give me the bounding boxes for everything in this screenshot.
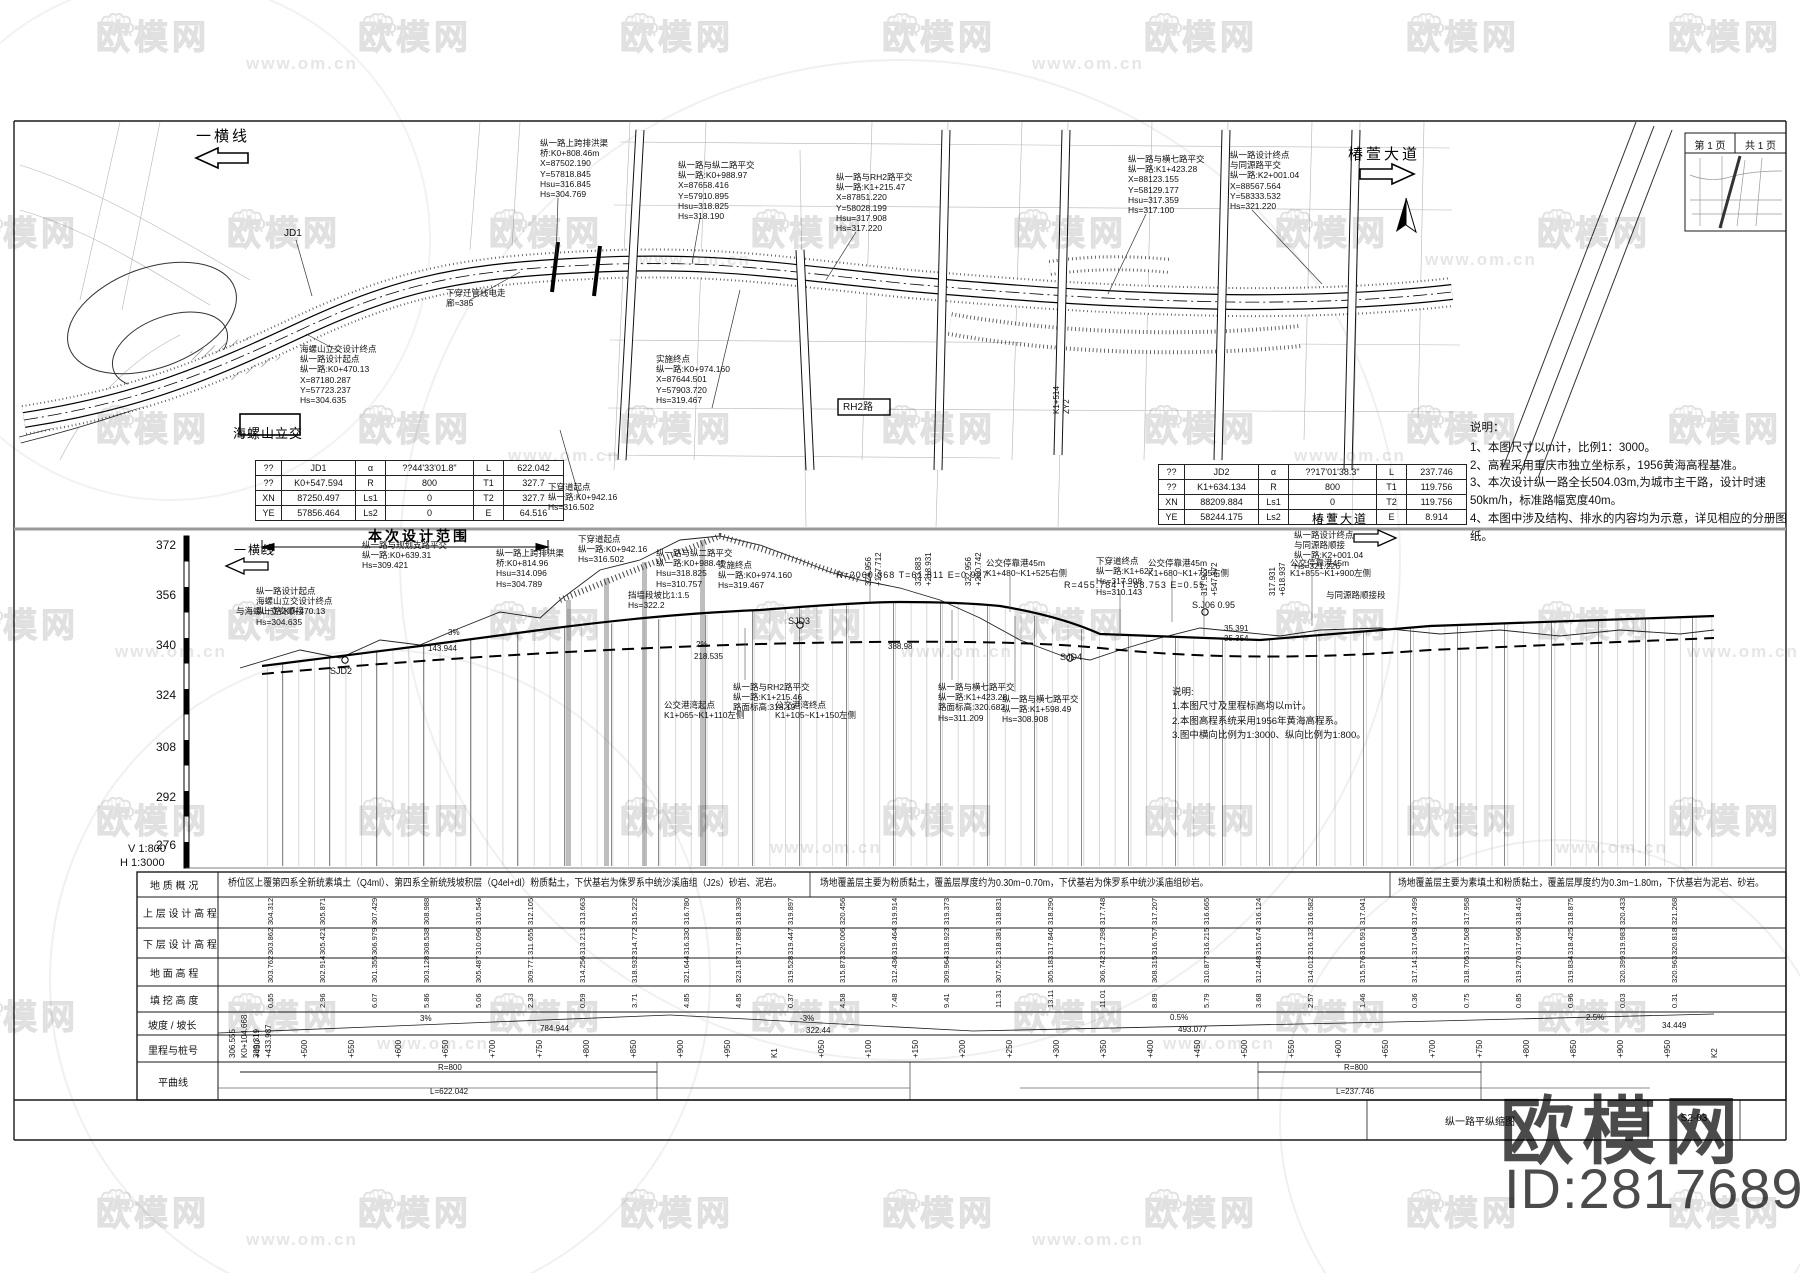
table-annotation: K0+104.668 <box>240 1015 250 1058</box>
note-item: 3、本次设计纵一路全长504.03m,为城市主干路，设计时速50km/h，标准路… <box>1470 475 1796 511</box>
table-annotation: 34.449 <box>1662 1021 1686 1031</box>
table-annotation: R=800 <box>438 1063 462 1073</box>
page-number: 第 1 页 <box>1685 137 1735 152</box>
curve-table-jd2: ??JD2α??17'01'38.3"L237.746??K1+634.134R… <box>1158 464 1467 525</box>
table-annotation: 3% <box>420 1014 432 1024</box>
table-annotation: 784.944 <box>540 1024 569 1034</box>
notes-block: 说明： 1、本图尺寸以m计，比例1：3000。2、高程采用重庆市独立坐标系，19… <box>1470 420 1796 547</box>
cad-sheet: 一横线椿萱大道纵一路上跨排洪渠桥:K0+808.46mX=87502.190Y=… <box>0 0 1800 1273</box>
notes-title: 说明： <box>1470 420 1796 438</box>
table-annotation: 493.077 <box>1178 1025 1207 1035</box>
table-annotation: R=800 <box>1344 1063 1368 1073</box>
note-item: 2、高程采用重庆市独立坐标系，1956黄海高程基准。 <box>1470 458 1796 476</box>
notes-items: 1、本图尺寸以m计，比例1：3000。2、高程采用重庆市独立坐标系，1956黄海… <box>1470 440 1796 547</box>
note-item: 4、本图中涉及结构、排水的内容均为示意，详见相应的分册图纸。 <box>1470 511 1796 547</box>
curve-table-jd1: ??JD1α??44'33'01.8"L622.042??K0+547.594R… <box>255 460 564 521</box>
table-annotation: 0.5% <box>1170 1013 1188 1023</box>
table-annotation: +433.987 <box>264 1024 274 1058</box>
note-item: 1、本图尺寸以m计，比例1：3000。 <box>1470 440 1796 458</box>
table-annotation: 2.5% <box>1586 1013 1604 1023</box>
table-annotation: L=622.042 <box>430 1087 468 1097</box>
table-annotation: L=237.746 <box>1336 1087 1374 1097</box>
page-total: 共 1 页 <box>1735 137 1786 152</box>
table-annotation: 309.319 <box>252 1029 262 1058</box>
table-annotation: 306.555 <box>228 1029 238 1058</box>
site-id: ID:2817689 <box>1504 1156 1800 1221</box>
table-annotation: -3% <box>800 1014 814 1024</box>
table-annotation: 322.44 <box>806 1026 830 1036</box>
